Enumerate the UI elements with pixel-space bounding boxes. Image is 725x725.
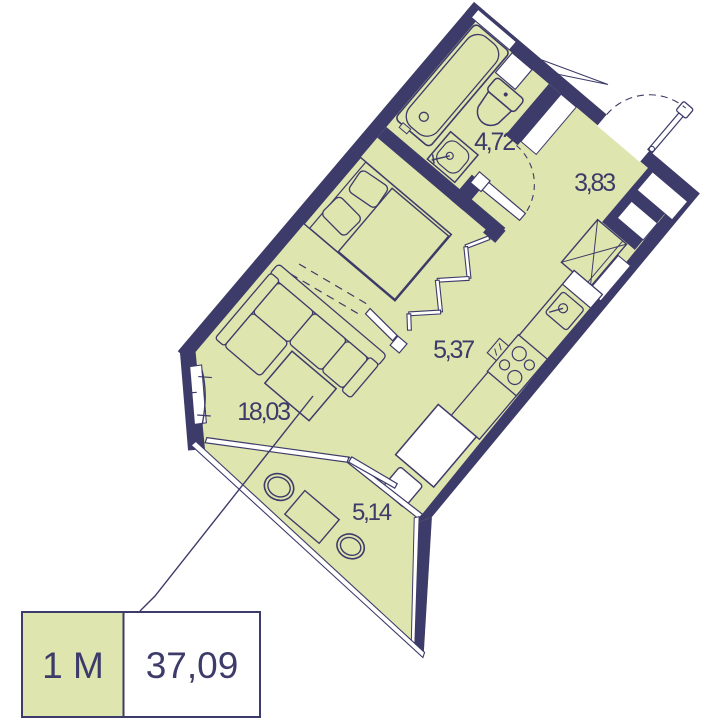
svg-text:3,83: 3,83 xyxy=(574,169,615,197)
svg-text:5,14: 5,14 xyxy=(352,499,392,526)
svg-text:5,37: 5,37 xyxy=(433,336,474,364)
svg-text:1 M: 1 M xyxy=(42,645,104,686)
svg-text:4,72: 4,72 xyxy=(474,128,515,156)
svg-text:18,03: 18,03 xyxy=(237,398,290,426)
svg-text:37,09: 37,09 xyxy=(146,645,239,686)
